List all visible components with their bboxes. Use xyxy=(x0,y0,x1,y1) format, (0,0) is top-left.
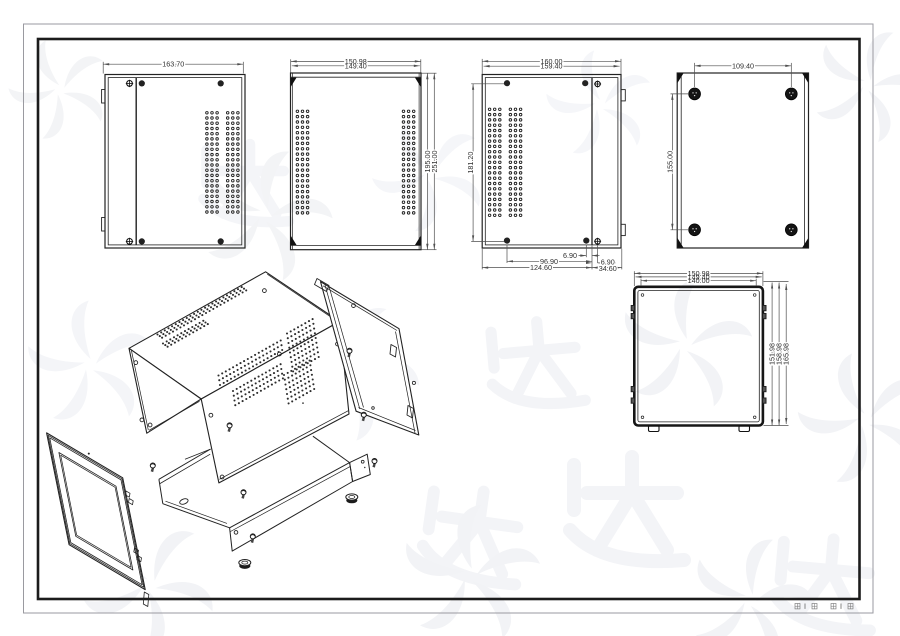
svg-text:181.20: 181.20 xyxy=(466,152,475,174)
svg-text:34.60: 34.60 xyxy=(599,264,617,273)
svg-text:6.90: 6.90 xyxy=(563,251,577,260)
svg-text:124.60: 124.60 xyxy=(530,263,552,272)
svg-text:251.00: 251.00 xyxy=(430,151,439,173)
svg-text:149.40: 149.40 xyxy=(345,61,367,70)
svg-text:155.00: 155.00 xyxy=(665,151,674,173)
svg-text:165.98: 165.98 xyxy=(782,343,791,365)
svg-text:109.40: 109.40 xyxy=(732,61,754,70)
svg-text:140.00: 140.00 xyxy=(688,276,710,285)
svg-text:163.70: 163.70 xyxy=(162,60,184,69)
svg-text:159.40: 159.40 xyxy=(541,62,563,71)
